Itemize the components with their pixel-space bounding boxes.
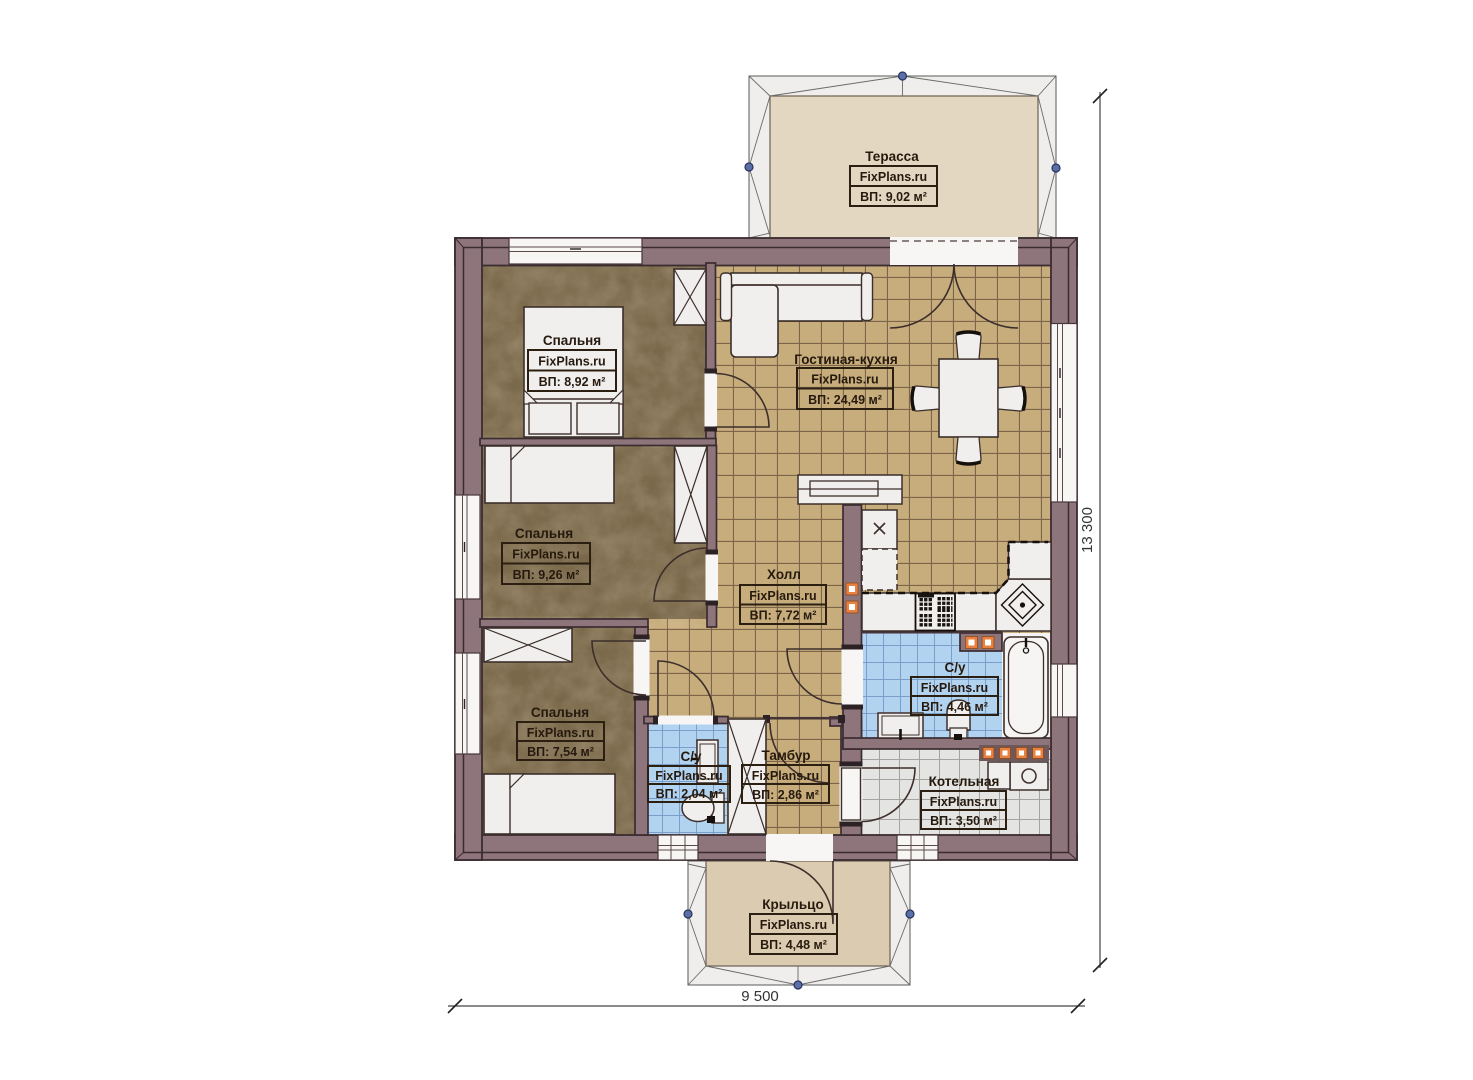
svg-text:Крыльцо: Крыльцо bbox=[762, 897, 823, 912]
svg-text:ВП: 3,50 м²: ВП: 3,50 м² bbox=[930, 814, 997, 828]
svg-text:С/у: С/у bbox=[944, 660, 966, 675]
svg-text:9 500: 9 500 bbox=[741, 988, 779, 1005]
svg-text:Гостиная-кухня: Гостиная-кухня bbox=[794, 352, 897, 367]
svg-text:Тамбур: Тамбур bbox=[762, 748, 811, 763]
svg-text:ВП: 7,54 м²: ВП: 7,54 м² bbox=[527, 745, 594, 759]
svg-text:ВП: 8,92 м²: ВП: 8,92 м² bbox=[539, 375, 606, 389]
svg-text:Котельная: Котельная bbox=[929, 774, 1000, 789]
svg-text:FixPlans.ru: FixPlans.ru bbox=[811, 373, 878, 387]
svg-text:Спальня: Спальня bbox=[515, 526, 573, 541]
svg-text:FixPlans.ru: FixPlans.ru bbox=[760, 918, 827, 932]
svg-text:ВП: 2,86 м²: ВП: 2,86 м² bbox=[752, 788, 819, 802]
svg-text:ВП: 9,26 м²: ВП: 9,26 м² bbox=[513, 568, 580, 582]
svg-text:ВП: 4,46 м²: ВП: 4,46 м² bbox=[921, 700, 988, 714]
svg-text:ВП: 2,04 м²: ВП: 2,04 м² bbox=[656, 787, 723, 801]
svg-text:13 300: 13 300 bbox=[1079, 507, 1096, 553]
svg-text:ВП: 24,49 м²: ВП: 24,49 м² bbox=[808, 393, 882, 407]
svg-text:FixPlans.ru: FixPlans.ru bbox=[527, 726, 594, 740]
svg-text:Спальня: Спальня bbox=[531, 705, 589, 720]
svg-text:FixPlans.ru: FixPlans.ru bbox=[538, 355, 605, 369]
svg-text:FixPlans.ru: FixPlans.ru bbox=[921, 681, 988, 695]
svg-text:ВП: 9,02 м²: ВП: 9,02 м² bbox=[860, 190, 927, 204]
svg-text:Терасса: Терасса bbox=[865, 149, 919, 164]
svg-text:ВП: 4,48 м²: ВП: 4,48 м² bbox=[760, 938, 827, 952]
svg-text:FixPlans.ru: FixPlans.ru bbox=[860, 170, 927, 184]
svg-text:Спальня: Спальня bbox=[543, 333, 601, 348]
svg-text:FixPlans.ru: FixPlans.ru bbox=[512, 548, 579, 562]
svg-text:FixPlans.ru: FixPlans.ru bbox=[930, 795, 997, 809]
svg-text:С/у: С/у bbox=[680, 749, 702, 764]
svg-text:FixPlans.ru: FixPlans.ru bbox=[752, 769, 819, 783]
svg-text:ВП: 7,72 м²: ВП: 7,72 м² bbox=[750, 609, 817, 623]
svg-text:FixPlans.ru: FixPlans.ru bbox=[749, 589, 816, 603]
svg-text:Холл: Холл bbox=[767, 567, 801, 582]
svg-text:FixPlans.ru: FixPlans.ru bbox=[655, 769, 722, 783]
